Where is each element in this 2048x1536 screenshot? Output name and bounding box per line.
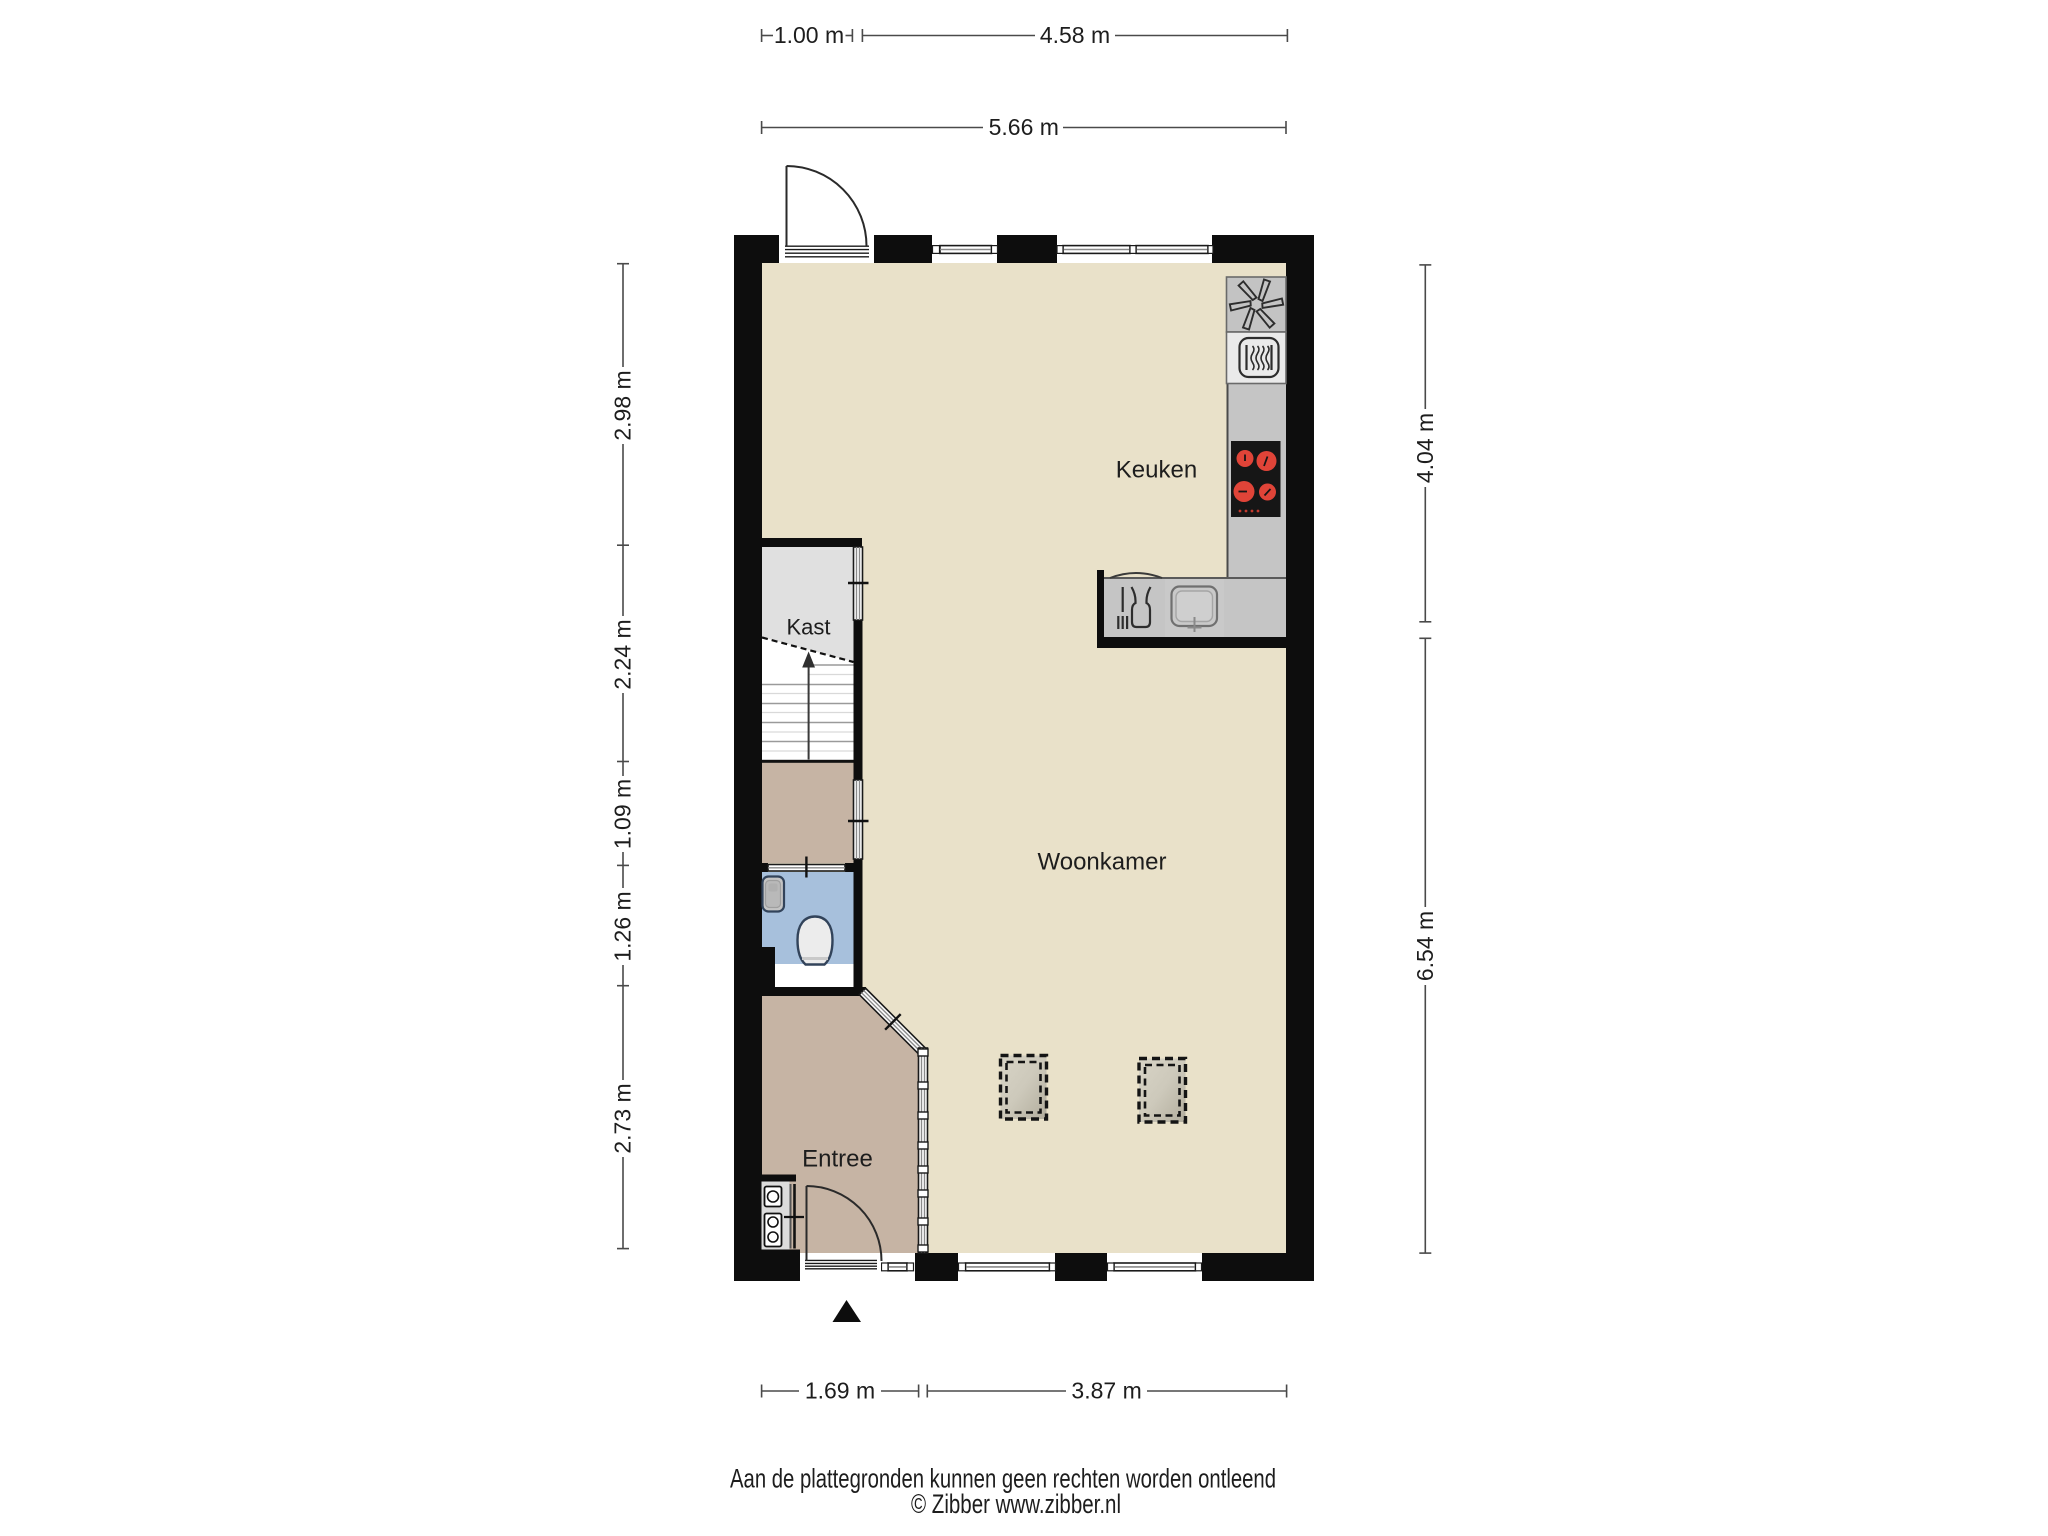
svg-text:Keuken: Keuken (1116, 457, 1197, 484)
svg-text:3.87 m: 3.87 m (1071, 1378, 1141, 1404)
svg-text:Woonkamer: Woonkamer (1038, 849, 1167, 876)
svg-text:1.69 m: 1.69 m (805, 1378, 875, 1404)
svg-text:Kast: Kast (786, 615, 830, 640)
svg-text:1.09 m: 1.09 m (610, 779, 636, 849)
svg-text:6.54 m: 6.54 m (1412, 911, 1438, 981)
svg-text:2.73 m: 2.73 m (610, 1083, 636, 1153)
svg-text:© Zibber www.zibber.nl: © Zibber www.zibber.nl (911, 1489, 1121, 1519)
svg-text:2.98 m: 2.98 m (610, 370, 636, 440)
svg-text:1.26 m: 1.26 m (610, 891, 636, 961)
svg-text:Entree: Entree (802, 1146, 873, 1173)
svg-text:2.24 m: 2.24 m (610, 619, 636, 689)
svg-text:5.66 m: 5.66 m (989, 114, 1059, 140)
svg-text:1.00 m: 1.00 m (774, 22, 844, 48)
svg-text:4.58 m: 4.58 m (1040, 22, 1110, 48)
svg-text:4.04 m: 4.04 m (1412, 413, 1438, 483)
